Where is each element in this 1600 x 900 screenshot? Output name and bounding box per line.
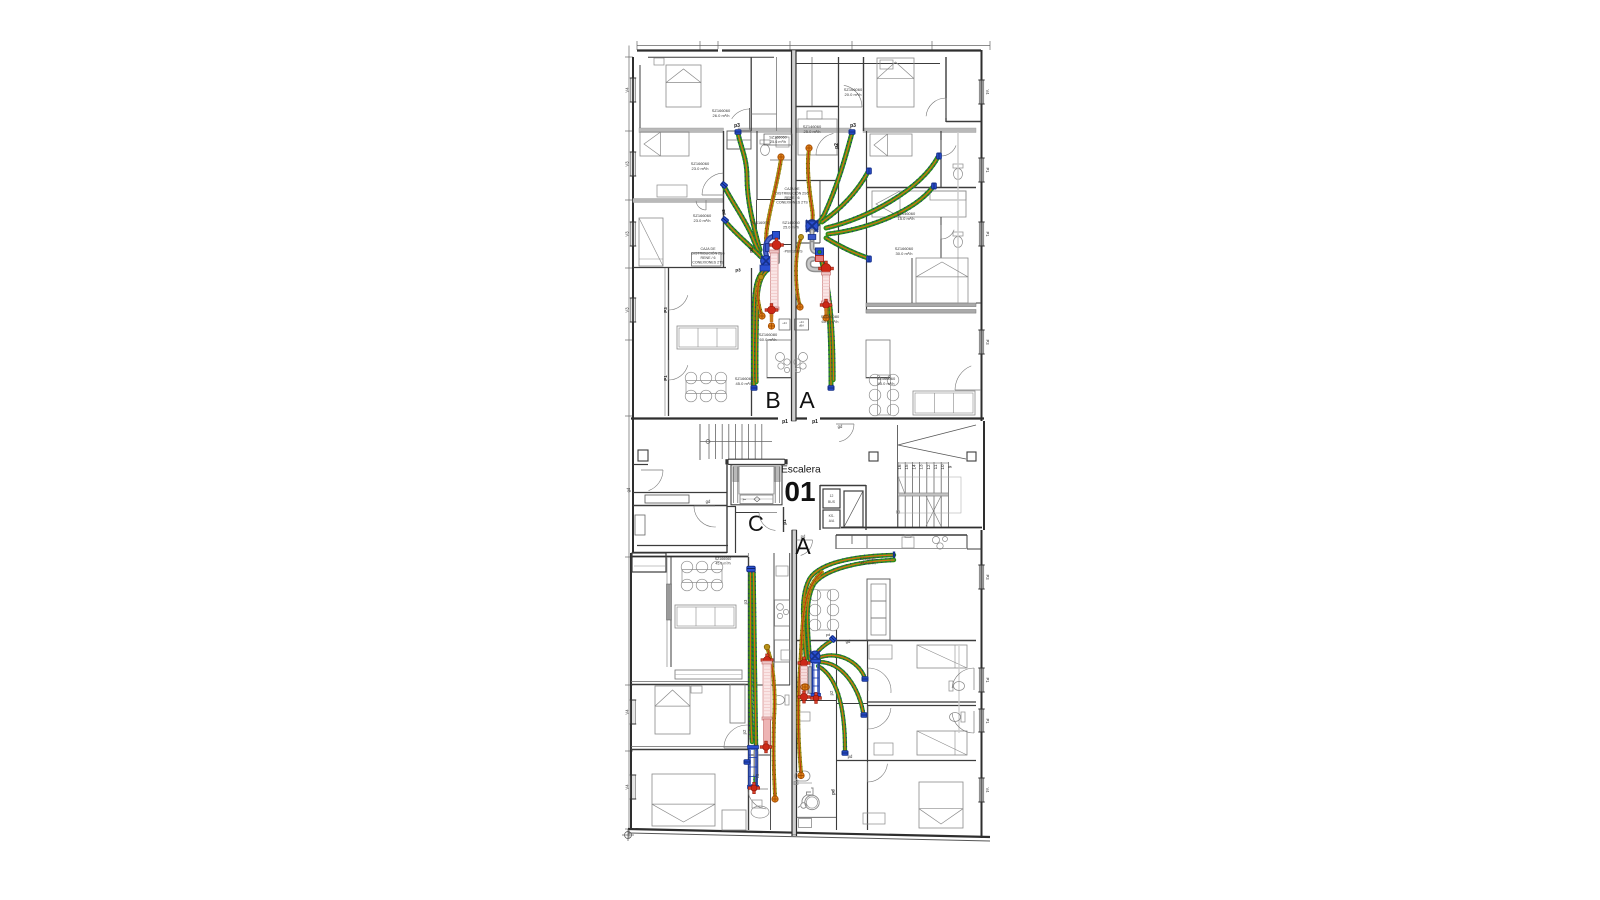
svg-text:RENE / 6: RENE / 6 — [785, 196, 800, 200]
svg-text:CAJA DE: CAJA DE — [785, 187, 801, 191]
svg-text:V4: V4 — [985, 787, 990, 793]
svg-text:CONEXIONES 2TS: CONEXIONES 2TS — [776, 201, 808, 205]
svg-text:+24: +24 — [799, 320, 804, 324]
svg-text:20.0 m³/h: 20.0 m³/h — [845, 92, 862, 97]
svg-text:P1: P1 — [985, 167, 990, 173]
svg-text:SZ166060: SZ166060 — [860, 557, 877, 561]
svg-text:10: 10 — [940, 464, 945, 470]
svg-text:p2: p2 — [742, 729, 747, 734]
svg-text:SZ166060: SZ166060 — [769, 136, 787, 140]
svg-text:V3: V3 — [625, 307, 630, 313]
svg-text:16: 16 — [897, 464, 902, 470]
svg-text:pd: pd — [826, 632, 830, 637]
svg-text:dBA: dBA — [799, 324, 804, 328]
svg-text:P3: P3 — [985, 339, 990, 345]
svg-text:01: 01 — [784, 476, 815, 507]
svg-text:KS-: KS- — [829, 514, 835, 518]
svg-text:25.0 m³/h: 25.0 m³/h — [804, 129, 821, 134]
svg-text:V3: V3 — [625, 231, 630, 237]
svg-text:9: 9 — [947, 465, 952, 468]
svg-text:gd: gd — [626, 487, 631, 492]
svg-text:13: 13 — [919, 464, 924, 470]
svg-text:45.0 m³/h: 45.0 m³/h — [736, 381, 753, 386]
svg-text:A: A — [799, 387, 815, 413]
svg-text:p2: p2 — [829, 690, 834, 695]
svg-text:45.0 m³/h: 45.0 m³/h — [860, 561, 875, 565]
svg-text:25.0 m³/h: 25.0 m³/h — [783, 226, 799, 230]
svg-text:45.0 m³/h: 45.0 m³/h — [878, 381, 895, 386]
svg-text:A: A — [795, 533, 811, 559]
svg-text:V4: V4 — [625, 87, 630, 93]
svg-text:CONEXIONES 2TS: CONEXIONES 2TS — [692, 261, 724, 265]
svg-text:SZ146060: SZ146060 — [782, 221, 800, 225]
svg-text:26.0 m³/h: 26.0 m³/h — [713, 113, 730, 118]
svg-text:P1: P1 — [985, 718, 990, 724]
svg-text:SZ166060: SZ166060 — [715, 557, 732, 561]
svg-text:12: 12 — [830, 494, 834, 498]
svg-text:CAJA DE: CAJA DE — [701, 247, 717, 251]
svg-text:12: 12 — [926, 464, 931, 470]
svg-text:c2: c2 — [755, 773, 760, 778]
svg-text:P3: P3 — [985, 574, 990, 580]
svg-text:p2: p2 — [721, 209, 726, 215]
svg-text:+24: +24 — [782, 321, 787, 325]
svg-text:p2: p2 — [749, 247, 754, 253]
svg-text:11: 11 — [933, 464, 938, 469]
svg-text:gd: gd — [706, 499, 711, 504]
svg-text:60.0 m³/h: 60.0 m³/h — [822, 319, 839, 324]
svg-text:14: 14 — [911, 464, 916, 470]
svg-text:23.0 m³/h: 23.0 m³/h — [692, 166, 709, 171]
svg-text:p3: p3 — [850, 123, 856, 129]
svg-text:60.0 m³/h: 60.0 m³/h — [760, 337, 777, 342]
svg-text:BUS: BUS — [828, 500, 836, 504]
svg-text:p1: p1 — [782, 519, 787, 525]
svg-text:V3: V3 — [625, 161, 630, 167]
svg-text:30.0 m³/h: 30.0 m³/h — [896, 251, 913, 256]
svg-text:p3: p3 — [734, 123, 740, 129]
svg-text:V4: V4 — [985, 89, 990, 95]
svg-text:p1: p1 — [812, 419, 818, 425]
svg-text:45.0 m³/h: 45.0 m³/h — [715, 561, 730, 565]
svg-text:⊢: ⊢ — [743, 497, 747, 503]
svg-text:PAS160FS: PAS160FS — [751, 221, 770, 225]
svg-text:B: B — [765, 387, 780, 413]
svg-text:pd: pd — [848, 754, 853, 759]
svg-text:p3: p3 — [743, 599, 748, 604]
svg-text:V4: V4 — [625, 709, 630, 715]
svg-text:V4: V4 — [625, 784, 630, 790]
svg-text:23.0 m³/h: 23.0 m³/h — [694, 218, 711, 223]
svg-text:15.0 m³/h: 15.0 m³/h — [898, 216, 915, 221]
svg-text:25.6 m³/h: 25.6 m³/h — [770, 140, 786, 144]
svg-text:DISTRIBUCIÓN 2S6: DISTRIBUCIÓN 2S6 — [775, 191, 808, 196]
svg-text:gd: gd — [846, 639, 851, 644]
svg-text:p2: p2 — [834, 143, 840, 149]
svg-text:A/A: A/A — [829, 519, 835, 523]
svg-text:P1: P1 — [663, 375, 668, 381]
svg-text:C: C — [748, 511, 764, 536]
svg-text:P3: P3 — [663, 307, 668, 313]
svg-text:P1: P1 — [985, 231, 990, 237]
svg-text:P1: P1 — [985, 677, 990, 683]
svg-text:-P60 160FS: -P60 160FS — [783, 250, 803, 254]
svg-text:gd: gd — [838, 424, 843, 429]
svg-text:15: 15 — [904, 464, 909, 470]
svg-text:p3: p3 — [735, 268, 741, 273]
svg-text:RENE / 6: RENE / 6 — [701, 256, 716, 260]
svg-text:Escalera: Escalera — [781, 465, 821, 476]
svg-text:p1: p1 — [782, 419, 788, 425]
svg-text:pd: pd — [831, 789, 836, 795]
